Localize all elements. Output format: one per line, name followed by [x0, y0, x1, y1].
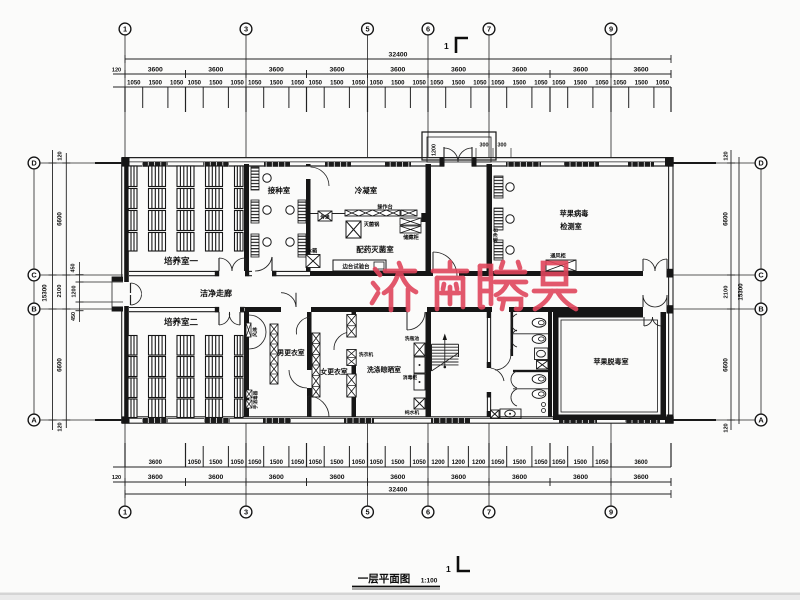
- svg-text:1050: 1050: [370, 460, 384, 466]
- svg-text:1050: 1050: [170, 81, 184, 87]
- svg-text:2100: 2100: [724, 286, 730, 299]
- svg-text:纯水机: 纯水机: [405, 409, 420, 416]
- svg-text:120: 120: [724, 423, 730, 432]
- svg-text:3600: 3600: [148, 474, 163, 481]
- svg-text:通风柜: 通风柜: [550, 252, 566, 260]
- svg-text:3600: 3600: [329, 474, 344, 481]
- svg-text:3600: 3600: [512, 67, 527, 74]
- svg-text:D: D: [31, 159, 37, 168]
- svg-text:120: 120: [58, 422, 64, 431]
- svg-text:15300: 15300: [738, 283, 745, 301]
- svg-text:手消毒器: 手消毒器: [252, 390, 259, 409]
- svg-text:120: 120: [724, 151, 730, 160]
- svg-text:1050: 1050: [291, 460, 305, 466]
- svg-text:C: C: [31, 271, 37, 280]
- svg-text:120: 120: [112, 475, 121, 481]
- svg-text:1050: 1050: [491, 81, 505, 87]
- svg-text:15300: 15300: [42, 284, 49, 302]
- svg-text:1500: 1500: [270, 81, 284, 87]
- svg-text:1050: 1050: [534, 81, 548, 87]
- svg-text:3600: 3600: [269, 67, 284, 74]
- svg-text:传递: 传递: [319, 214, 330, 221]
- svg-text:450: 450: [71, 264, 77, 273]
- svg-text:300: 300: [480, 143, 489, 149]
- svg-text:1050: 1050: [370, 81, 384, 87]
- svg-text:1500: 1500: [513, 81, 527, 87]
- svg-text:6: 6: [426, 508, 430, 517]
- svg-text:1500: 1500: [574, 460, 588, 466]
- svg-text:储藏柜: 储藏柜: [403, 233, 419, 241]
- svg-text:1050: 1050: [413, 81, 427, 87]
- svg-text:6600: 6600: [57, 358, 64, 372]
- svg-text:3600: 3600: [451, 67, 466, 74]
- svg-text:1500: 1500: [330, 81, 344, 87]
- svg-text:男更衣室: 男更衣室: [276, 348, 304, 357]
- svg-text:1050: 1050: [188, 460, 202, 466]
- svg-text:D: D: [758, 159, 764, 168]
- svg-text:3600: 3600: [634, 460, 648, 466]
- svg-text:消毒柜: 消毒柜: [403, 374, 418, 381]
- svg-text:6600: 6600: [723, 358, 730, 372]
- svg-text:接种室: 接种室: [268, 185, 291, 195]
- svg-text:3600: 3600: [208, 67, 223, 74]
- svg-text:3600: 3600: [451, 474, 466, 481]
- svg-text:苹果脱毒室: 苹果脱毒室: [594, 357, 629, 366]
- svg-text:1200: 1200: [452, 460, 466, 466]
- svg-text:1050: 1050: [231, 81, 245, 87]
- svg-text:操作台: 操作台: [377, 203, 393, 211]
- svg-text:1500: 1500: [209, 81, 223, 87]
- svg-text:1050: 1050: [188, 81, 202, 87]
- svg-text:1050: 1050: [552, 460, 566, 466]
- svg-text:3600: 3600: [573, 474, 588, 481]
- svg-text:3600: 3600: [390, 474, 405, 481]
- svg-text:1050: 1050: [309, 460, 323, 466]
- svg-text:5: 5: [365, 25, 369, 34]
- svg-text:120: 120: [58, 151, 64, 160]
- svg-text:6600: 6600: [57, 212, 64, 226]
- svg-text:1050: 1050: [127, 81, 141, 87]
- svg-text:120: 120: [112, 68, 121, 74]
- svg-text:1050: 1050: [248, 81, 262, 87]
- svg-text:灭菌锅: 灭菌锅: [364, 220, 380, 228]
- svg-text:1500: 1500: [452, 81, 466, 87]
- svg-text:3600: 3600: [269, 474, 284, 481]
- svg-text:1050: 1050: [552, 81, 566, 87]
- svg-text:32400: 32400: [389, 52, 408, 59]
- svg-text:苹果病毒: 苹果病毒: [560, 209, 590, 218]
- svg-text:冷凝室: 冷凝室: [355, 185, 378, 195]
- svg-text:3600: 3600: [633, 67, 648, 74]
- svg-text:洗瓶池: 洗瓶池: [405, 335, 420, 342]
- svg-text:6600: 6600: [723, 212, 730, 226]
- svg-text:3600: 3600: [390, 67, 405, 74]
- svg-text:1500: 1500: [330, 460, 344, 466]
- svg-text:1050: 1050: [352, 460, 366, 466]
- svg-text:1200: 1200: [432, 144, 438, 156]
- svg-text:边台试验台: 边台试验台: [342, 263, 371, 271]
- svg-text:3600: 3600: [512, 474, 527, 481]
- svg-text:6: 6: [426, 25, 430, 34]
- svg-text:1500: 1500: [635, 81, 649, 87]
- svg-text:1: 1: [123, 508, 127, 517]
- svg-text:1: 1: [444, 41, 449, 51]
- svg-text:女更衣室: 女更衣室: [320, 367, 347, 376]
- svg-text:培养室一: 培养室一: [164, 256, 199, 266]
- svg-text:1050: 1050: [248, 460, 262, 466]
- svg-text:32400: 32400: [389, 487, 408, 494]
- svg-text:1500: 1500: [149, 81, 163, 87]
- svg-text:3: 3: [244, 25, 248, 34]
- svg-text:1050: 1050: [352, 81, 366, 87]
- svg-text:1050: 1050: [231, 460, 245, 466]
- svg-text:3600: 3600: [149, 460, 163, 466]
- svg-text:1500: 1500: [270, 460, 284, 466]
- svg-text:3600: 3600: [148, 67, 163, 74]
- svg-text:A: A: [758, 416, 764, 425]
- svg-text:洗衣机: 洗衣机: [359, 351, 374, 358]
- svg-text:1200: 1200: [72, 286, 78, 298]
- svg-text:检测室: 检测室: [560, 222, 582, 231]
- svg-text:洁净走廊: 洁净走廊: [200, 288, 232, 298]
- svg-text:300: 300: [498, 143, 507, 149]
- svg-text:B: B: [31, 305, 36, 314]
- svg-text:9: 9: [609, 25, 613, 34]
- svg-text:1050: 1050: [595, 81, 609, 87]
- svg-text:一层平面图: 一层平面图: [358, 573, 411, 585]
- svg-text:1050: 1050: [309, 81, 323, 87]
- svg-text:B: B: [758, 305, 763, 314]
- svg-text:A: A: [31, 416, 37, 425]
- svg-text:洗涤晾晒室: 洗涤晾晒室: [367, 365, 401, 374]
- svg-text:培养室二: 培养室二: [164, 317, 199, 327]
- svg-text:1050: 1050: [413, 460, 427, 466]
- svg-text:超净台: 超净台: [492, 228, 499, 244]
- svg-text:1050: 1050: [534, 460, 548, 466]
- svg-text:1050: 1050: [430, 81, 444, 87]
- svg-text:配药灭菌室: 配药灭菌室: [356, 244, 394, 254]
- svg-text:1050: 1050: [595, 460, 609, 466]
- svg-text:1050: 1050: [491, 460, 505, 466]
- svg-text:1050: 1050: [613, 81, 627, 87]
- svg-text:1200: 1200: [431, 460, 445, 466]
- svg-text:3600: 3600: [208, 474, 223, 481]
- svg-text:1050: 1050: [291, 81, 305, 87]
- svg-text:7: 7: [487, 25, 491, 34]
- svg-text:1: 1: [446, 564, 451, 574]
- svg-text:1500: 1500: [391, 81, 405, 87]
- svg-text:1: 1: [123, 25, 127, 34]
- svg-text:1050: 1050: [656, 81, 670, 87]
- svg-text:1500: 1500: [574, 81, 588, 87]
- svg-text:450: 450: [71, 312, 77, 321]
- svg-text:3600: 3600: [329, 67, 344, 74]
- svg-text:1500: 1500: [513, 460, 527, 466]
- svg-text:1500: 1500: [209, 460, 223, 466]
- svg-text:5: 5: [365, 508, 369, 517]
- svg-text:1050: 1050: [473, 81, 487, 87]
- svg-text:9: 9: [609, 508, 613, 517]
- svg-text:3600: 3600: [573, 67, 588, 74]
- svg-text:7: 7: [487, 508, 491, 517]
- svg-text:1200: 1200: [472, 460, 486, 466]
- svg-text:C: C: [758, 271, 764, 280]
- svg-text:1:100: 1:100: [421, 578, 438, 585]
- svg-text:3600: 3600: [633, 474, 648, 481]
- svg-text:风淋: 风淋: [252, 327, 259, 337]
- svg-text:3: 3: [244, 508, 248, 517]
- svg-text:1500: 1500: [391, 460, 405, 466]
- svg-text:冰箱: 冰箱: [307, 247, 318, 255]
- svg-text:2100: 2100: [57, 285, 63, 298]
